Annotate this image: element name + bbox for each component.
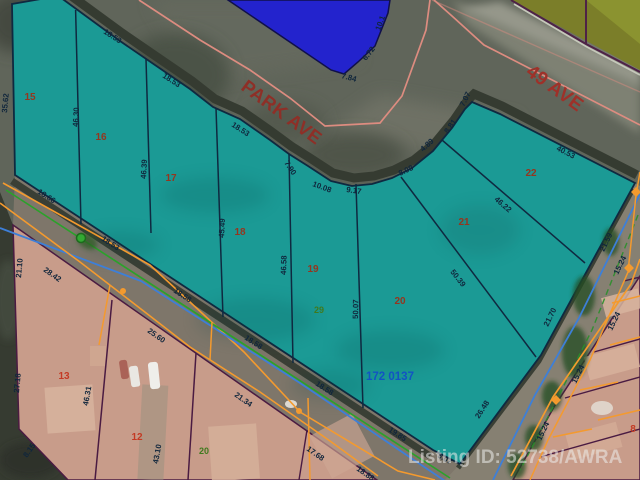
svg-text:35.62: 35.62 — [0, 92, 11, 113]
svg-text:21.10: 21.10 — [14, 257, 25, 278]
svg-text:46.30: 46.30 — [71, 106, 81, 127]
svg-text:172 0137: 172 0137 — [366, 371, 414, 383]
svg-text:15: 15 — [24, 92, 36, 103]
svg-text:46.58: 46.58 — [279, 255, 289, 275]
svg-text:46.39: 46.39 — [139, 158, 149, 179]
svg-text:Listing ID: 52738/AWRA: Listing ID: 52738/AWRA — [408, 447, 623, 468]
svg-text:16: 16 — [95, 132, 107, 143]
svg-text:45.49: 45.49 — [217, 217, 227, 238]
svg-text:29: 29 — [314, 305, 324, 315]
svg-text:18: 18 — [234, 227, 246, 238]
svg-text:20: 20 — [394, 296, 406, 307]
svg-text:27.18: 27.18 — [12, 372, 23, 393]
svg-text:19: 19 — [307, 264, 319, 275]
svg-text:50.07: 50.07 — [351, 299, 360, 319]
svg-text:12: 12 — [131, 432, 143, 443]
svg-text:22: 22 — [525, 168, 537, 179]
svg-text:8: 8 — [630, 424, 636, 435]
svg-text:21: 21 — [458, 217, 470, 228]
svg-text:13: 13 — [58, 371, 70, 382]
svg-text:20: 20 — [199, 446, 209, 456]
svg-text:17: 17 — [165, 173, 177, 184]
